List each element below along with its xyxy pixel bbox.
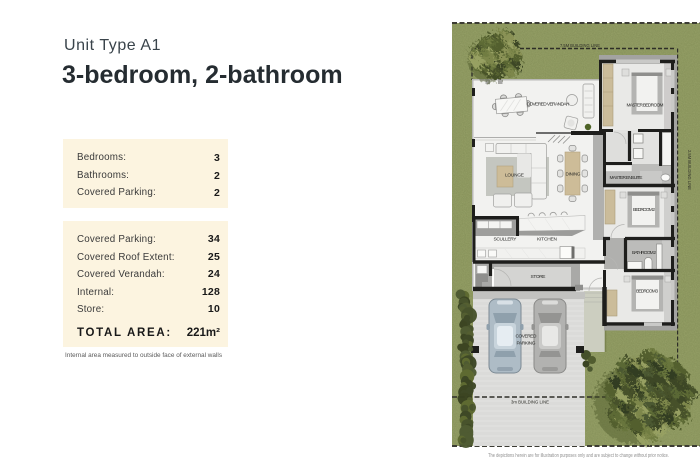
svg-text:KITCHEN: KITCHEN xyxy=(537,237,558,243)
svg-text:7.5M BUILDING LINE: 7.5M BUILDING LINE xyxy=(560,43,600,48)
svg-text:BEDROOM 3: BEDROOM 3 xyxy=(636,289,658,295)
svg-text:3m BUILDING LINE: 3m BUILDING LINE xyxy=(511,400,549,405)
svg-text:SCULLERY: SCULLERY xyxy=(494,237,518,243)
svg-text:COVERED VERANDAH: COVERED VERANDAH xyxy=(527,102,571,108)
svg-text:DINING: DINING xyxy=(566,172,581,177)
svg-text:STORE: STORE xyxy=(531,274,546,280)
svg-text:LOUNGE: LOUNGE xyxy=(505,173,524,179)
svg-text:MASTER ENSUITE: MASTER ENSUITE xyxy=(610,175,643,181)
svg-text:2.5M BUILDING LINE: 2.5M BUILDING LINE xyxy=(687,150,692,190)
svg-text:PARKING: PARKING xyxy=(517,341,536,347)
svg-text:BATHROOM 2: BATHROOM 2 xyxy=(632,250,656,256)
svg-text:The depictions herein are for: The depictions herein are for illustrati… xyxy=(488,453,669,459)
svg-text:BEDROOM 2: BEDROOM 2 xyxy=(633,207,655,213)
svg-text:MASTER BEDROOM: MASTER BEDROOM xyxy=(627,103,664,109)
svg-text:COVERED: COVERED xyxy=(516,334,538,340)
